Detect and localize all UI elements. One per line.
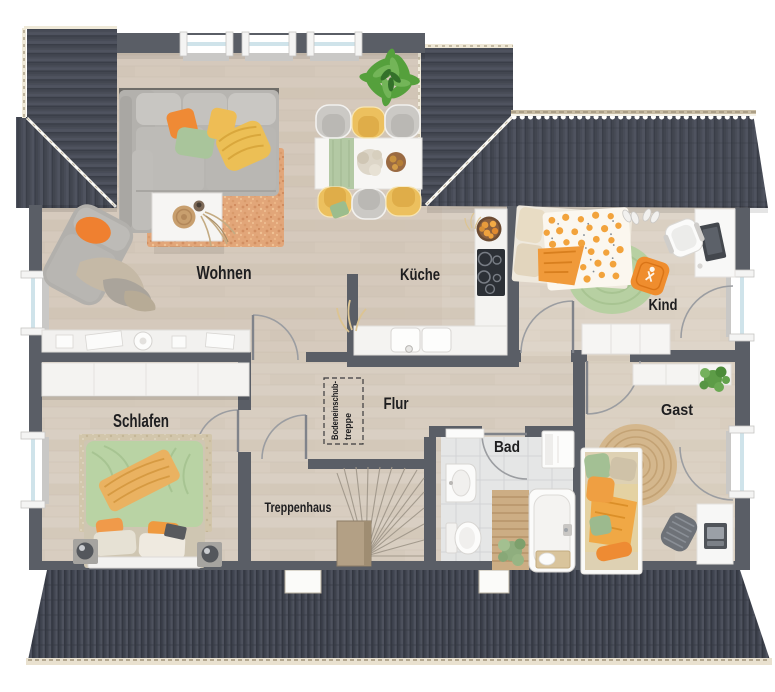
svg-text:Bad: Bad — [494, 439, 520, 456]
svg-text:Küche: Küche — [400, 266, 440, 284]
svg-text:Schlafen: Schlafen — [113, 411, 169, 431]
svg-text:Treppenhaus: Treppenhaus — [265, 500, 332, 515]
svg-text:Wohnen: Wohnen — [197, 263, 252, 283]
svg-text:Bodeneinschub-: Bodeneinschub- — [330, 381, 341, 440]
svg-text:treppe: treppe — [343, 413, 354, 440]
svg-text:Kind: Kind — [649, 297, 678, 314]
svg-text:Flur: Flur — [384, 394, 409, 413]
svg-text:Gast: Gast — [661, 402, 694, 419]
